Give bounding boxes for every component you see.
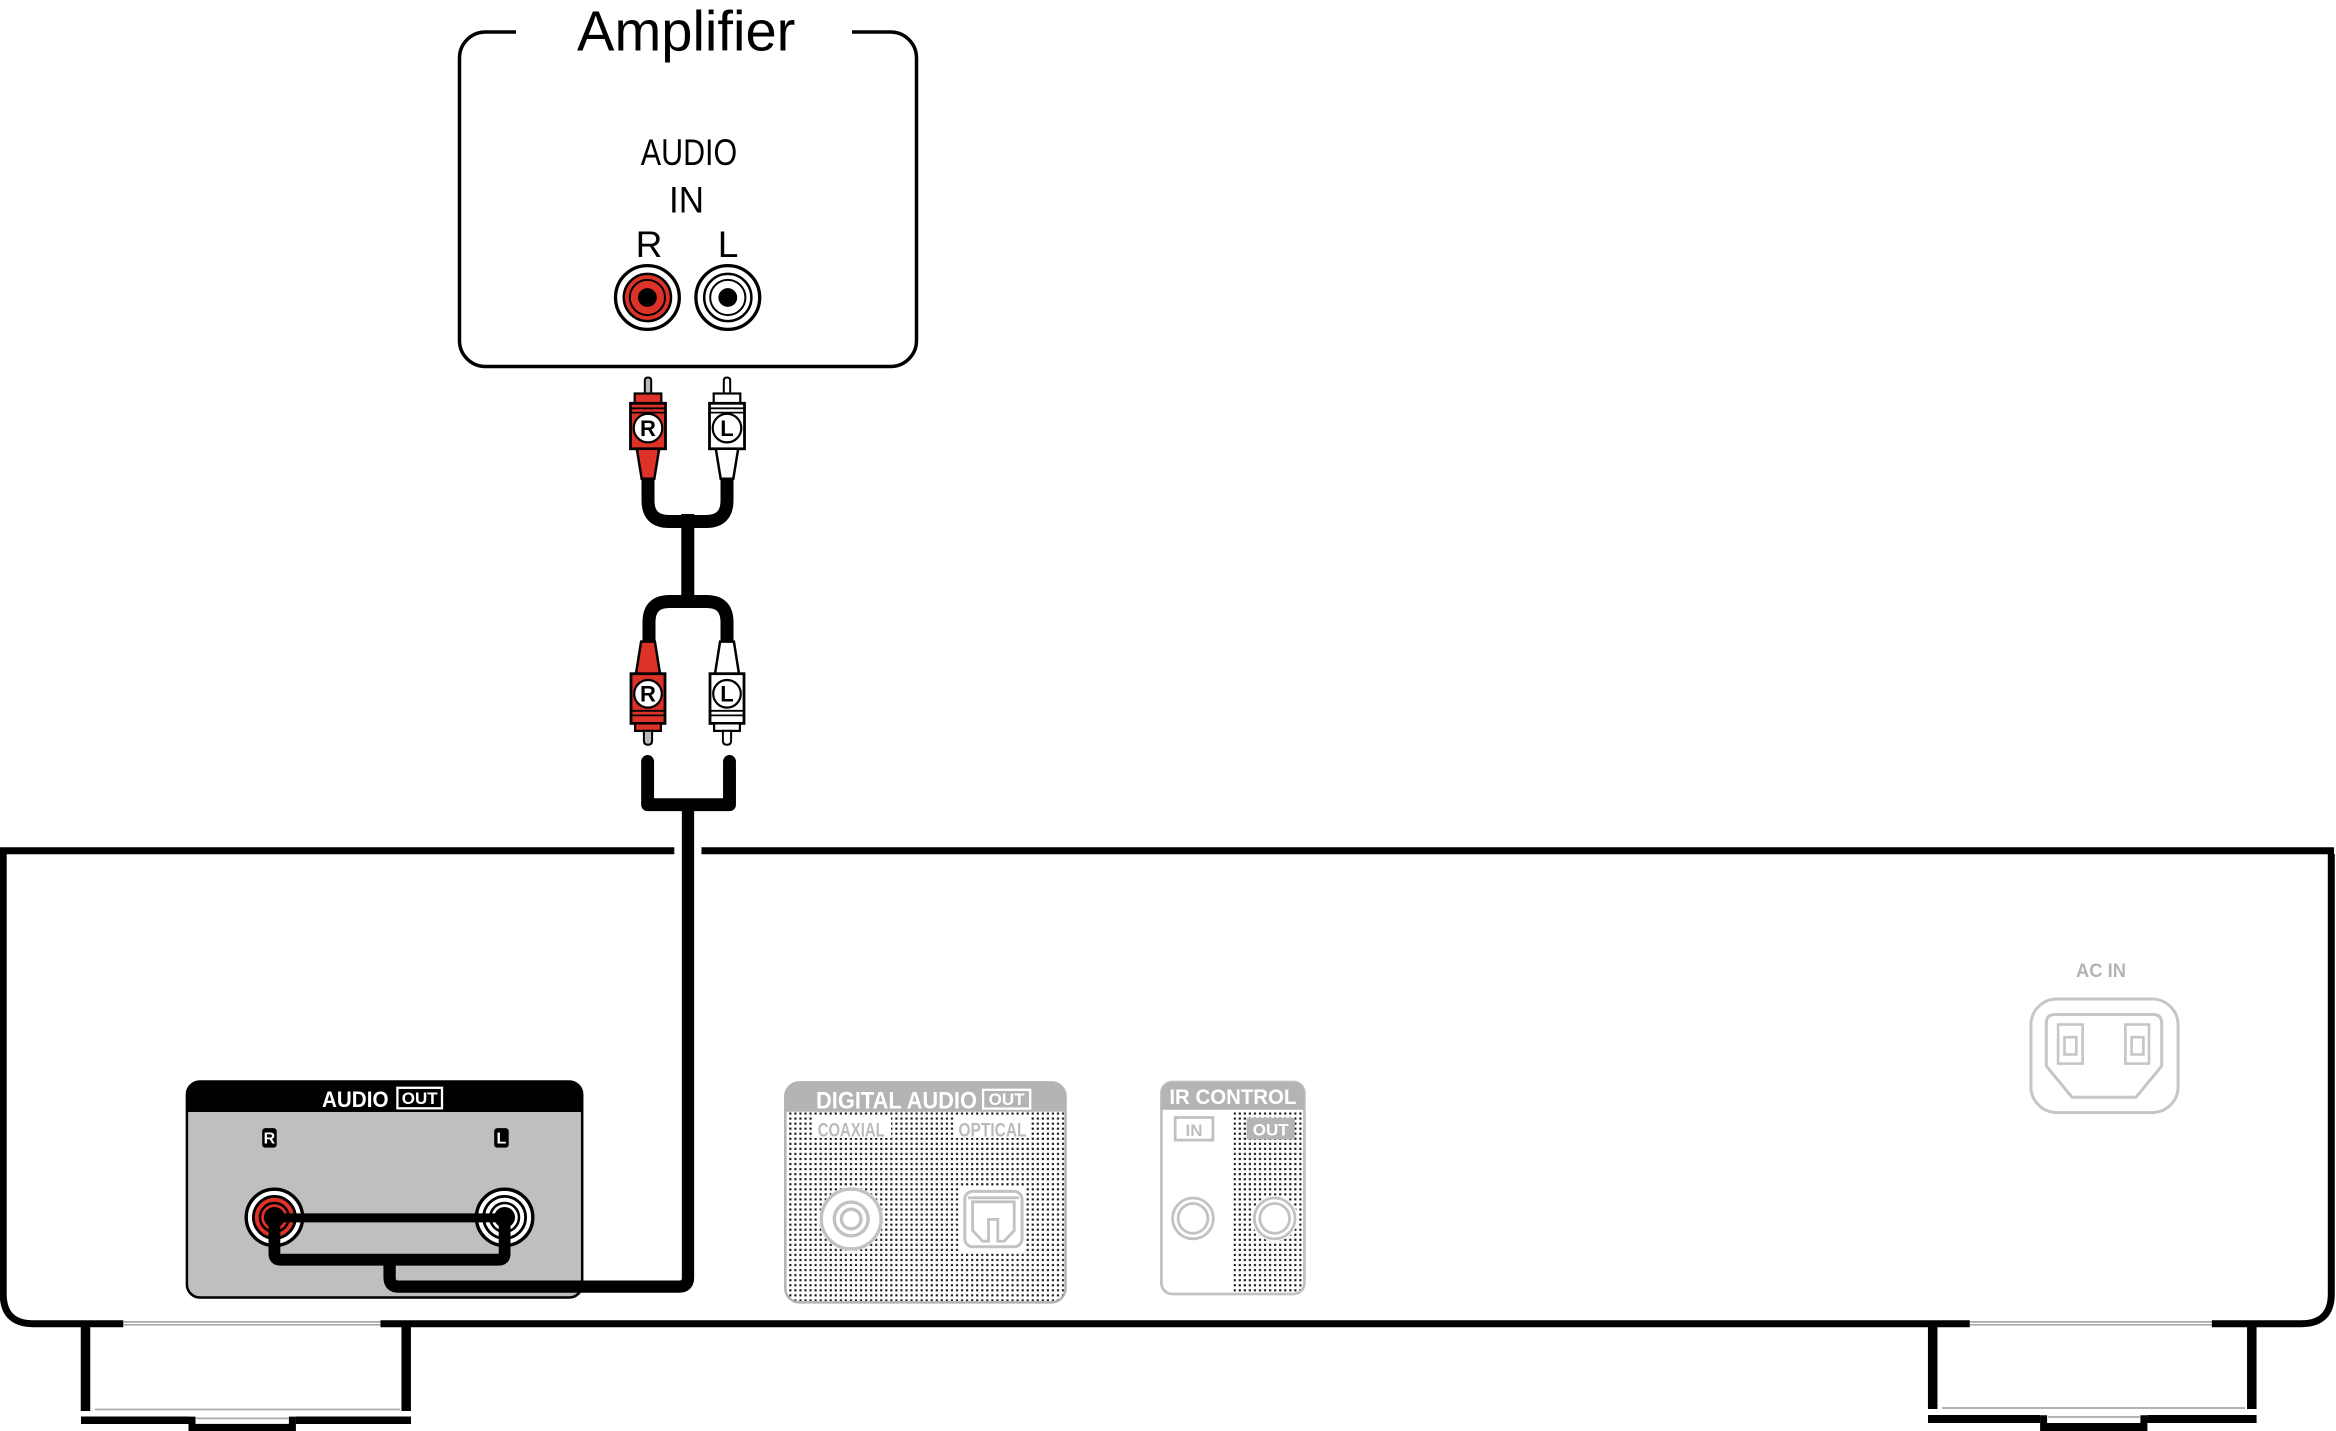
svg-text:IR CONTROL: IR CONTROL (1169, 1086, 1296, 1109)
svg-text:R: R (640, 416, 656, 441)
svg-text:AUDIO: AUDIO (322, 1087, 389, 1112)
svg-text:L: L (718, 224, 739, 265)
svg-text:R: R (636, 224, 663, 265)
svg-text:L: L (720, 416, 733, 441)
svg-text:OUT: OUT (1253, 1120, 1290, 1139)
svg-text:COAXIAL: COAXIAL (818, 1120, 885, 1141)
svg-text:R: R (264, 1131, 276, 1148)
svg-text:IN: IN (669, 180, 704, 221)
svg-text:L: L (497, 1131, 507, 1148)
svg-text:DIGITAL AUDIO: DIGITAL AUDIO (816, 1087, 977, 1114)
svg-text:AC IN: AC IN (2076, 961, 2126, 982)
svg-text:OPTICAL: OPTICAL (959, 1120, 1027, 1141)
svg-text:L: L (720, 682, 733, 707)
svg-text:OUT: OUT (989, 1090, 1026, 1109)
svg-text:Amplifier: Amplifier (577, 0, 795, 63)
svg-text:AUDIO: AUDIO (641, 132, 737, 173)
svg-text:OUT: OUT (402, 1089, 439, 1108)
svg-text:IN: IN (1186, 1121, 1203, 1140)
svg-text:R: R (640, 682, 656, 707)
